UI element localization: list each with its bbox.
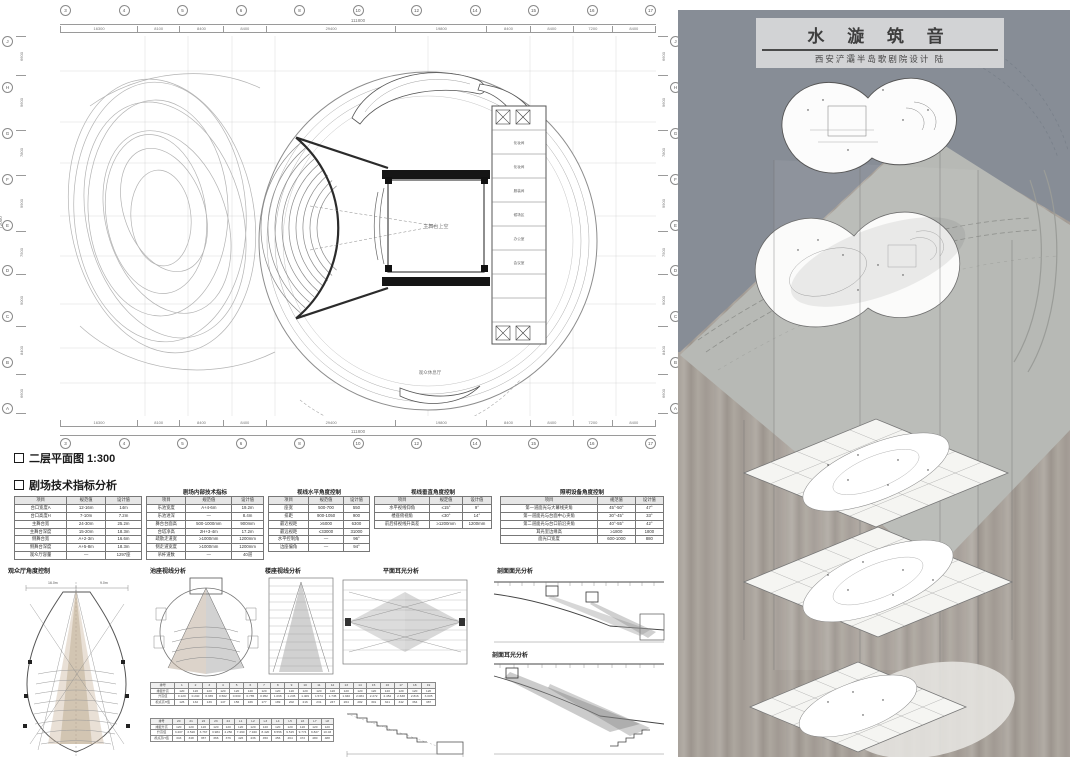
table-cell: 96°	[343, 536, 369, 544]
table-cell: —	[186, 512, 232, 520]
table-cell: 水平视线仰角	[375, 504, 430, 512]
grid-bubble: 4	[119, 438, 130, 449]
table-cell: 侧走道宽度	[147, 544, 186, 552]
sightline-calc-table-2: 排号2021222324L1L2L3L4L5L6L7L8排距升高12012012…	[150, 718, 334, 742]
dim-label: 9900	[658, 175, 668, 231]
column-header: 规范值	[598, 497, 636, 505]
grid-bubble: 5	[177, 5, 188, 16]
dim-label: 6600	[658, 374, 668, 414]
table-row: 水平控制角—96°	[269, 536, 370, 544]
analysis-section-head: 剧场技术指标分析	[14, 477, 117, 493]
table-row: 最远视距≤3300031000	[269, 528, 370, 536]
table-cell: 376	[222, 735, 234, 741]
table-cell: 900	[343, 512, 369, 520]
column-header: 规范值	[309, 497, 344, 505]
table-row: 舞台台面高500-1000mm900mm	[147, 520, 264, 528]
dim-label: 9600	[658, 75, 668, 129]
theatre-internal-metrics-table: 项目规范值设计值乐池宽度A+4-6m19.2m乐池进深—8.4m舞台台面高500…	[146, 496, 264, 560]
balcony-sightline-diagram	[265, 574, 337, 680]
grid-bubble: 10	[353, 5, 364, 16]
table-cell: —	[67, 552, 106, 560]
column-header: 规范值	[67, 497, 106, 505]
d1-dim-label: 16.0m	[48, 581, 58, 585]
dim-label: 16300	[60, 26, 137, 33]
column-header: 设计值	[343, 497, 369, 505]
table-cell: 31000	[343, 528, 369, 536]
dim-segments-bottom: 1630081008400840029400198008400840072008…	[60, 420, 656, 427]
dim-label: 8400	[223, 420, 266, 427]
table-cell: 水平控制角	[269, 536, 309, 544]
checkbox-square-icon	[14, 480, 24, 490]
table-row: 疏散走道宽≥1000mm1200mm	[147, 536, 264, 544]
grid-bubble: D	[2, 265, 13, 276]
dim-label: 8400	[179, 26, 222, 33]
table-cell: 7.2m	[106, 512, 142, 520]
sightline-vertical-table: 项目规定值设计值水平视线仰角≤15°9°楼座俯视角≤30°14°前后排视线升高差…	[374, 496, 492, 529]
table-cell: 楼座俯视角	[375, 512, 430, 520]
table-cell: 177	[257, 699, 271, 705]
table-cell: 18.3m	[106, 528, 142, 536]
table-row: 排距900-1050900	[269, 512, 370, 520]
column-header: 设计值	[232, 497, 264, 505]
room-label: 服装间	[514, 188, 525, 193]
room-label: 会议室	[514, 260, 525, 265]
stage-label: 主舞台上空	[423, 223, 448, 230]
table-row: 楼座俯视角≤30°14°	[375, 512, 492, 520]
table-cell: 231	[312, 699, 326, 705]
dim-label: 9900	[16, 175, 26, 231]
analysis-section-label: 剧场技术指标分析	[29, 477, 117, 493]
dim-label: 6600	[16, 36, 26, 75]
table-cell: 166	[243, 699, 257, 705]
table-row: 吊杆道数—40道	[147, 552, 264, 560]
table-cell: 480	[309, 735, 321, 741]
grid-bubble: F	[2, 174, 13, 185]
table-cell: ≥1000mm	[186, 536, 232, 544]
grid-bubble: 17	[645, 438, 656, 449]
table-cell: ≥5000	[309, 520, 344, 528]
dim-label: 19800	[395, 26, 486, 33]
table-cell: 第一道面光与台面中心夹角	[501, 512, 598, 520]
table-cell: 第一道面光与大幕线夹角	[501, 504, 598, 512]
room-strip: 化妆间 化妆间 服装间 候场区 办公室 会议室	[492, 106, 546, 344]
table-cell: 耳光室边缘高	[501, 528, 598, 536]
table-cell: 40°-55°	[598, 520, 636, 528]
table-cell: 乐池进深	[147, 512, 186, 520]
dim-label: 7500	[16, 231, 26, 275]
grid-bubble: 8	[294, 438, 305, 449]
table-cell: A+4-6m	[186, 504, 232, 512]
table-cell: 座宽	[269, 504, 309, 512]
table-cell: 189	[271, 699, 285, 705]
table-cell: 357	[197, 735, 209, 741]
table-cell: 500-1000mm	[186, 520, 232, 528]
column-header: 设计值	[106, 497, 142, 505]
table-cell: ≤15°	[430, 504, 463, 512]
column-header: 设计值	[462, 497, 491, 505]
table-row: 乐池进深—8.4m	[147, 512, 264, 520]
table-cell: 16.6m	[106, 536, 142, 544]
table-cell: 1800	[635, 528, 663, 536]
grid-bubble: 14	[470, 438, 481, 449]
table-cell: 14m	[106, 504, 142, 512]
table-cell: 1200mm	[232, 536, 264, 544]
left-contour-blob	[60, 64, 277, 370]
table-cell: 25.2m	[106, 520, 142, 528]
checkbox-square-icon	[14, 453, 24, 463]
dim-label: 8400	[16, 326, 26, 374]
table-cell: 456	[272, 735, 284, 741]
plan-sidelight-diagram	[341, 574, 469, 674]
table-cell: 台口宽度A	[15, 504, 67, 512]
table-row: 侧舞台宽A+2-3m16.6m	[15, 536, 142, 544]
table-cell: 45°-50°	[598, 504, 636, 512]
table-cell: ≥1000mm	[186, 544, 232, 552]
theatre-main-metrics-table: 项目规范值设计值台口宽度A12-16m14m台口高度H7-10m7.2m主舞台宽…	[14, 496, 142, 560]
sightline-horizontal-table: 项目规范值设计值座宽500-700550排距900-1050900最近视距≥50…	[268, 496, 370, 552]
dim-segments-left: 66009600780099007500900084006600	[16, 36, 26, 414]
grid-bubble: 16	[587, 438, 598, 449]
grid-bubble: 10	[353, 438, 364, 449]
grid-bubble: 16	[587, 5, 598, 16]
table-cell: 47°	[635, 504, 663, 512]
table-cell: 247	[326, 699, 340, 705]
column-header: 项目	[375, 497, 430, 505]
dim-label: 6600	[658, 36, 668, 75]
table-cell: 600-1000	[598, 536, 636, 544]
table-cell: 880	[635, 536, 663, 544]
presentation-board: 34568101214151617 111800 163008100840084…	[0, 0, 1084, 766]
grid-bubble: E	[2, 220, 13, 231]
dim-label: 7200	[573, 420, 612, 427]
table-cell: ≥1200mm	[430, 520, 463, 528]
table-cell: 426	[234, 735, 246, 741]
table-cell: 吊杆道数	[147, 552, 186, 560]
table-cell: 464	[284, 735, 296, 741]
audience-angle-diagram: 16.0m 9.0m	[8, 574, 145, 762]
table-cell: 15-20m	[67, 528, 106, 536]
table-cell: 主舞台宽	[15, 520, 67, 528]
grid-bubble: A	[2, 403, 13, 414]
table-row: 升高值3.2073.5203.7673.9844.2507.4907.9408.…	[151, 730, 334, 736]
dim-label: 29400	[266, 26, 395, 33]
table-title: 剧场内部技术指标	[146, 488, 264, 496]
grid-bubble: 15	[528, 438, 539, 449]
table-row: 前后排视线升高差≥1200mm1200mm	[375, 520, 492, 528]
table-cell: 17.2m	[232, 528, 264, 536]
dim-label: 9000	[658, 274, 668, 325]
table-cell: ≥1800	[598, 528, 636, 536]
table-cell: 前后排视线升高差	[375, 520, 430, 528]
table-cell: 202	[285, 699, 299, 705]
grid-bubble: 6	[236, 438, 247, 449]
dim-label: 8400	[486, 420, 529, 427]
table-cell: 侧舞台深度	[15, 544, 67, 552]
table-row: 耳光室边缘高≥18001800	[501, 528, 664, 536]
grid-bubble: 3	[60, 5, 71, 16]
table-title: 视线水平角度控制	[268, 488, 370, 496]
grid-bubble: B	[2, 357, 13, 368]
table-cell: 14°	[462, 512, 491, 520]
dim-total-top: 111800	[60, 17, 656, 25]
table-cell: 1200mm	[462, 520, 491, 528]
lounge-label: 观众休息厅	[419, 369, 442, 376]
column-header: 项目	[15, 497, 67, 505]
table-cell: 1200mm	[232, 544, 264, 552]
axonometric-poster-panel: 水 漩 筑 音 西安浐灞半岛歌剧院设计 陆	[678, 10, 1070, 757]
column-header: 设计值	[635, 497, 663, 505]
poster-subtitle: 西安浐灞半岛歌剧院设计 陆	[762, 53, 998, 65]
grid-bubble: 17	[645, 5, 656, 16]
table-row: 座宽500-700550	[269, 504, 370, 512]
dim-label: 8400	[530, 26, 573, 33]
table-cell: 台塔净高	[147, 528, 186, 536]
column-header: 规范值	[186, 497, 232, 505]
table-cell: 侧舞台宽	[15, 536, 67, 544]
table-row: 最近视距≥50006300	[269, 520, 370, 528]
grid-bubble: 6	[236, 5, 247, 16]
table-row: 第一道面光与台面中心夹角30°-45°33°	[501, 512, 664, 520]
table-row: 主舞台深度15-20m18.3m	[15, 528, 142, 536]
table-cell: ≤33000	[309, 528, 344, 536]
stalls-sightline-diagram	[150, 574, 262, 680]
room-label: 办公室	[514, 236, 525, 241]
table-row: 台口宽度A12-16m14m	[15, 504, 142, 512]
title-block: 水 漩 筑 音 西安浐灞半岛歌剧院设计 陆	[756, 18, 1004, 68]
grid-bubble: H	[2, 82, 13, 93]
section-frontlight-diagram	[490, 574, 668, 648]
grid-bubble: J	[2, 36, 13, 47]
table-cell: 18.3m	[106, 544, 142, 552]
grid-bubbles-left: JHGFEDCBA	[2, 36, 13, 414]
table-row: 水平视线仰角≤15°9°	[375, 504, 492, 512]
table-cell: 488	[321, 735, 333, 741]
d1-dim-label: 9.0m	[100, 581, 108, 585]
table-cell: 24-30m	[67, 520, 106, 528]
table-cell: 观众厅容量	[15, 552, 67, 560]
table-row: 台口高度H7-10m7.2m	[15, 512, 142, 520]
table-cell: 主舞台深度	[15, 528, 67, 536]
table-cell: 42°	[635, 520, 663, 528]
dim-label: 8400	[658, 326, 668, 374]
table-cell: 94°	[343, 544, 369, 552]
grid-bubble: G	[2, 128, 13, 139]
dim-total-bottom: 111800	[60, 428, 656, 436]
dim-label: 19800	[395, 420, 486, 427]
table-row: 观众厅容量—1297座	[15, 552, 142, 560]
table-cell: 472	[296, 735, 308, 741]
table-cell: 台口高度H	[15, 512, 67, 520]
table-cell: 舞台台面高	[147, 520, 186, 528]
table-cell: ≤30°	[430, 512, 463, 520]
table-cell: A+2-3m	[67, 536, 106, 544]
table-row: 视点高H值34334835736637642643645045646447248…	[151, 735, 334, 741]
table-cell: 156	[230, 699, 244, 705]
grid-bubbles-top: 34568101214151617	[60, 5, 656, 16]
table-cell: 450	[259, 735, 271, 741]
table-cell: —	[309, 536, 344, 544]
grid-bubble: 14	[470, 5, 481, 16]
table-cell: 500-700	[309, 504, 344, 512]
dim-label: 8400	[486, 26, 529, 33]
dim-label: 8400	[612, 26, 656, 33]
dim-total-left: 72000	[0, 216, 3, 229]
table-cell: 乐池宽度	[147, 504, 186, 512]
table-cell: —	[186, 552, 232, 560]
table-cell: 7-10m	[67, 512, 106, 520]
table-cell: 1297座	[106, 552, 142, 560]
grid-bubble: 3	[60, 438, 71, 449]
column-header: 项目	[501, 497, 598, 505]
table-cell: 436	[247, 735, 259, 741]
table-row: 台塔净高2H+3-4m17.2m	[147, 528, 264, 536]
table-cell: 视点高H值	[151, 699, 175, 705]
dim-label: 8400	[223, 26, 266, 33]
grid-bubble: 12	[411, 438, 422, 449]
floor-plan-drawing: 主舞台上空 化妆间 化妆间 服装间 候场区 办公室 会议室 观众休息厅	[60, 36, 656, 416]
table-cell: 366	[210, 735, 222, 741]
grid-bubbles-bottom: 34568101214151617	[60, 438, 656, 449]
column-header: 规定值	[430, 497, 463, 505]
dim-label: 7500	[658, 231, 668, 275]
table-cell: 900-1050	[309, 512, 344, 520]
dim-label: 8100	[137, 26, 179, 33]
table-cell: 2H+3-4m	[186, 528, 232, 536]
grid-bubble: 8	[294, 5, 305, 16]
table-cell: 9°	[462, 504, 491, 512]
column-header: 项目	[147, 497, 186, 505]
dim-segments-right: 66009600780099007500900084006600	[658, 36, 668, 414]
table-cell: 疏散走道宽	[147, 536, 186, 544]
dim-label: 7800	[16, 130, 26, 175]
dim-label: 8400	[530, 420, 573, 427]
dim-label: 9600	[16, 75, 26, 129]
table-cell: 40道	[232, 552, 264, 560]
table-cell: —	[309, 544, 344, 552]
table-row: 面光口宽度600-1000880	[501, 536, 664, 544]
column-header: 项目	[269, 497, 309, 505]
lighting-angle-table: 项目规范值设计值第一道面光与大幕线夹角45°-50°47°第一道面光与台面中心夹…	[500, 496, 664, 544]
table-cell: 12-16m	[67, 504, 106, 512]
table-cell: 19.2m	[232, 504, 264, 512]
room-label: 化妆间	[514, 164, 525, 169]
table-cell: 边座偏角	[269, 544, 309, 552]
dim-label: 8400	[612, 420, 656, 427]
table-cell: 126	[175, 699, 189, 705]
table-cell: 216	[298, 699, 312, 705]
grid-bubble: 12	[411, 5, 422, 16]
dim-label: 8400	[179, 420, 222, 427]
exploded-axonometric-drawing	[678, 10, 1070, 757]
table-cell: 147	[216, 699, 230, 705]
table-cell: 最近视距	[269, 520, 309, 528]
table-title: 视线垂直角度控制	[374, 488, 492, 496]
poster-title: 水 漩 筑 音	[762, 22, 998, 51]
table-row: 乐池宽度A+4-6m19.2m	[147, 504, 264, 512]
table-cell: 900mm	[232, 520, 264, 528]
dim-label: 8100	[137, 420, 179, 427]
table-cell: 视点高H值	[151, 735, 173, 741]
table-cell: 132	[189, 699, 203, 705]
grid-bubble: 5	[177, 438, 188, 449]
room-label: 候场区	[514, 212, 525, 217]
table-cell: 面光口宽度	[501, 536, 598, 544]
table-cell: 139	[202, 699, 216, 705]
room-label: 化妆间	[514, 140, 525, 145]
table-row: 第一道面光与大幕线夹角45°-50°47°	[501, 504, 664, 512]
table-row: 主舞台宽24-30m25.2m	[15, 520, 142, 528]
dim-label: 7200	[573, 26, 612, 33]
table-cell: 最远视距	[269, 528, 309, 536]
table-cell: 348	[185, 735, 197, 741]
ramp-section-sketch	[341, 702, 469, 760]
table-cell: 6300	[343, 520, 369, 528]
plan-section-head: 二层平面图 1:300	[14, 450, 115, 466]
dim-label: 29400	[266, 420, 395, 427]
table-cell: 8.4m	[232, 512, 264, 520]
table-row: 侧舞台深度A+5-8m18.3m	[15, 544, 142, 552]
dim-segments-top: 1630081008400840029400198008400840072008…	[60, 26, 656, 33]
table-cell: 343	[173, 735, 185, 741]
table-title: 照明设备角度控制	[500, 488, 664, 496]
grid-bubble: 15	[528, 5, 539, 16]
table-row: 边座偏角—94°	[269, 544, 370, 552]
dim-label: 6600	[16, 374, 26, 414]
dim-label: 7800	[658, 130, 668, 175]
grid-bubble: 4	[119, 5, 130, 16]
plan-section-label: 二层平面图 1:300	[29, 450, 115, 466]
table-cell: 第二道面光与台口前沿夹角	[501, 520, 598, 528]
dim-label: 16300	[60, 420, 137, 427]
table-cell: 排距	[269, 512, 309, 520]
table-row: 侧走道宽度≥1000mm1200mm	[147, 544, 264, 552]
table-cell: A+5-8m	[67, 544, 106, 552]
table-cell: 33°	[635, 512, 663, 520]
section-sidelight-diagram	[490, 658, 668, 762]
dim-label: 9000	[16, 274, 26, 325]
table-row: 第二道面光与台口前沿夹角40°-55°42°	[501, 520, 664, 528]
grid-bubble: C	[2, 311, 13, 322]
table-cell: 30°-45°	[598, 512, 636, 520]
table-cell: 550	[343, 504, 369, 512]
